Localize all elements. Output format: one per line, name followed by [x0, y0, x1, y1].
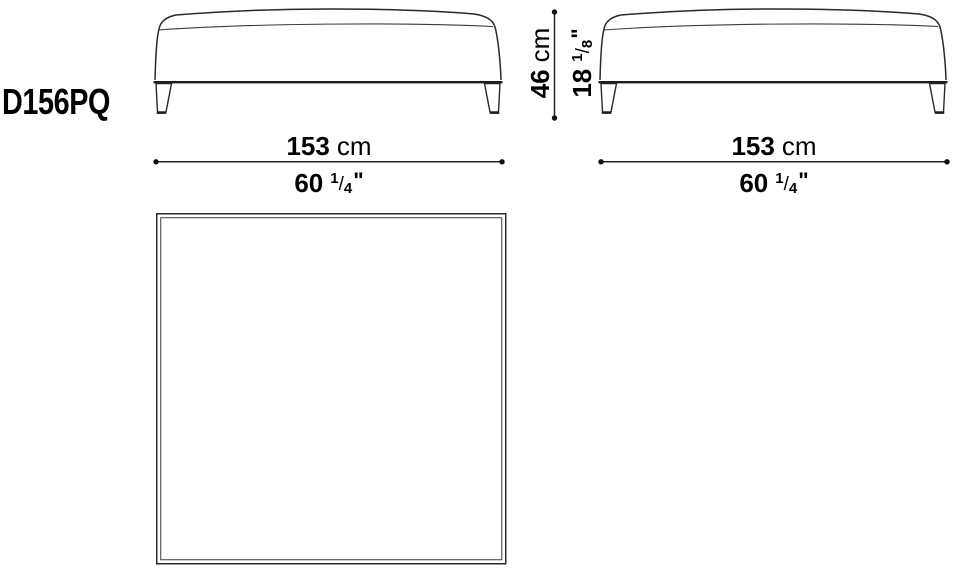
- bench-front-left-leg: [156, 84, 172, 113]
- height-metric-unit: cm: [525, 28, 555, 63]
- front-width-imperial-label: 601/4": [229, 165, 429, 193]
- front-width-endpoint-dot-left: [153, 159, 158, 164]
- bench-side-view-drawing: [597, 2, 949, 117]
- top-view-outer-outline: [157, 214, 506, 564]
- technical-drawing-sheet: D156PQ 46cm 181/8" 153cm: [0, 0, 962, 574]
- bench-front-view-drawing: [152, 2, 504, 117]
- height-dimension-endpoint-dot-top: [552, 9, 557, 14]
- side-width-imperial-unit: ": [798, 168, 808, 193]
- front-width-metric-label: 153cm: [229, 132, 429, 160]
- bench-side-body-outline: [600, 9, 946, 80]
- height-imperial-unit: ": [567, 28, 592, 38]
- side-width-imperial-label: 601/4": [674, 165, 874, 193]
- height-imperial-frac-denominator: 8: [579, 40, 596, 48]
- height-metric-value: 46: [525, 69, 555, 98]
- side-width-frac-denominator: 4: [789, 180, 797, 197]
- height-imperial-frac-slash: /: [573, 48, 594, 53]
- side-width-endpoint-dot-right: [944, 159, 949, 164]
- side-width-metric-label: 153cm: [674, 132, 874, 160]
- bench-front-body-outline: [155, 9, 501, 80]
- bench-front-right-leg: [485, 84, 501, 113]
- bench-top-view-drawing: [156, 213, 507, 565]
- front-width-frac-numerator: 1: [330, 170, 338, 187]
- height-dimension-endpoint-dot-bottom: [552, 115, 557, 120]
- height-metric-label: 46cm: [526, 18, 554, 108]
- product-code: D156PQ: [2, 84, 110, 120]
- side-width-frac-numerator: 1: [775, 170, 783, 187]
- height-imperial-whole: 18: [567, 69, 597, 98]
- front-width-endpoint-dot-right: [499, 159, 504, 164]
- front-width-imperial-whole: 60: [294, 168, 323, 198]
- height-imperial-label: 181/8": [564, 15, 592, 111]
- bench-side-right-leg: [930, 84, 946, 113]
- side-width-endpoint-dot-left: [598, 159, 603, 164]
- side-width-imperial-whole: 60: [739, 168, 768, 198]
- front-width-imperial-unit: ": [353, 168, 363, 193]
- height-imperial-frac-numerator: 1: [569, 53, 586, 61]
- bench-side-left-leg: [601, 84, 617, 113]
- front-width-frac-denominator: 4: [344, 180, 352, 197]
